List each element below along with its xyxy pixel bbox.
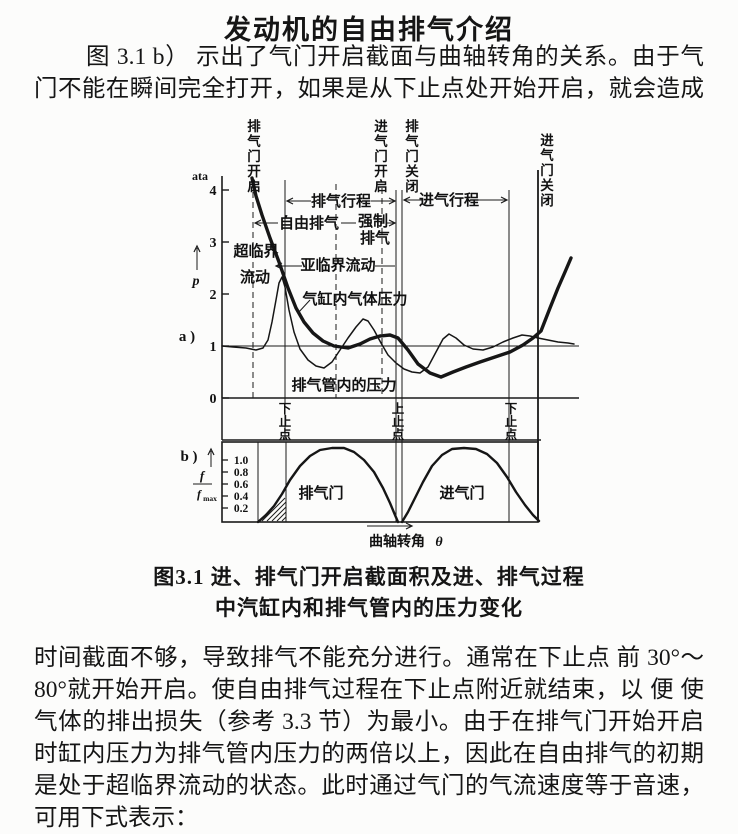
f-label: f [200,468,206,483]
paragraph-1: 图 3.1 b） 示出了气门开启截面与曲轴转角的关系。由于气门不能在瞬间完全打开… [34,41,704,105]
hatch-line [277,512,286,521]
dead-center-label: 下 [505,402,518,416]
panel-a-label: a ) [179,329,195,345]
valve-event-label: 启 [374,178,388,194]
b-tick-label: 0.4 [234,491,249,503]
text-line: 时缸内压力为排气管内压力的两倍以上，因此在自由排气的初期 [34,738,704,770]
annotation-label: 进气行程 [419,191,479,209]
pressure-label: p [192,274,200,289]
annotation-label: 流动 [240,268,270,286]
figure-3-1: 43210atapa )1.00.80.60.40.2b )ffmax排气行程进… [0,110,738,560]
text-line: 80°就开始开启。使自由排气过程在下止点附近就结束，以 便 使 [34,674,704,706]
hatch-line [262,498,285,521]
text-line: 是处于超临界流动的状态。此时通过气门的气流速度等于音速， [34,770,704,802]
fmax-label: f [197,487,202,501]
text-line: 可用下式表示： [34,802,704,834]
figure-caption: 图3.1 进、排气门开启截面积及进、排气过程 中汽缸内和排气管内的压力变化 [0,562,738,624]
valve-event-label: 启 [247,178,261,194]
annotation-label: 亚临界流动 [300,256,375,274]
annotation-label: 自由排气 [279,214,339,232]
dead-center-label: 上 [392,401,405,416]
valve-event-label: 闭 [405,178,419,194]
text-line: 气体的排出损失（参考 3.3 节）为最小。由于在排气门开始开启 [34,706,704,738]
exhaust-valve-lift-curve [258,448,398,522]
figure-chart: 43210atapa )1.00.80.60.40.2b )ffmax排气行程进… [148,110,618,560]
dead-center-label: 止 [505,414,518,429]
dead-center-label: 止 [279,414,292,429]
dead-center-label: 止 [392,414,405,429]
valve-event-label: 关 [540,177,554,193]
valve-event-label: 闭 [540,192,554,208]
text-line: 时间截面不够，导致排气不能充分进行。通常在下止点 前 30°～ [34,642,704,674]
valve-event-label: 门 [540,162,554,178]
b-tick-label: 0.6 [234,479,249,491]
text-line: 图 3.1 b） 示出了气门开启截面与曲轴转角的关系。由于气 [34,41,704,73]
dead-center-label: 下 [279,402,292,416]
valve-event-label: 气 [404,133,419,149]
annotation-label: 进气门 [439,484,484,502]
panel-b-label: b ) [180,449,197,465]
annotation-label: 超临界 [232,242,278,260]
annotation-label: 曲轴转角 [369,533,425,550]
valve-event-label: 门 [247,148,261,164]
caption-line-1: 图3.1 进、排气门开启截面积及进、排气过程 [0,562,738,593]
valve-event-label: 关 [405,163,419,179]
annotation-label: θ [435,535,443,550]
valve-event-label: 排 [247,118,261,134]
b-tick-label: 0.2 [234,503,249,515]
unit-label-ata: ata [192,169,208,183]
valve-event-label: 气 [373,133,388,149]
dead-center-label: 点 [505,427,518,442]
valve-event-label: 开 [247,164,261,179]
intake-valve-lift-curve [402,448,539,522]
valve-event-label: 进 [374,119,388,134]
annotation-label: 排气门 [298,484,343,502]
annotation-label: 强制 [358,212,388,230]
hatch-line [282,517,286,521]
y-tick-label: 1 [210,340,217,355]
annotation-label: 排气管内的压力 [291,376,396,394]
paragraph-2: 时间截面不够，导致排气不能充分进行。通常在下止点 前 30°～80°就开始开启。… [34,642,704,834]
b-tick-label: 1.0 [234,455,249,467]
valve-event-label: 气 [539,147,554,163]
valve-event-label: 开 [374,164,388,179]
y-tick-label: 2 [210,288,217,303]
y-tick-label: 4 [210,184,217,199]
annotation-label: 气缸内气体压力 [301,290,407,308]
fmax-sub: max [203,494,217,503]
annotation-label: 排气 [360,229,390,247]
annotation-label: 排气行程 [311,192,371,210]
valve-event-label: 进 [540,133,554,148]
dead-center-label: 点 [392,427,405,442]
valve-event-label: 排 [405,118,419,134]
y-tick-label: 0 [210,392,217,407]
y-tick-label: 3 [210,236,217,251]
valve-event-label: 气 [246,133,261,149]
dead-center-label: 点 [279,427,292,442]
valve-event-label: 门 [405,148,419,164]
caption-line-2: 中汽缸内和排气管内的压力变化 [0,593,738,624]
b-tick-label: 0.8 [234,467,249,479]
text-line: 门不能在瞬间完全打开，如果是从下止点处开始开启，就会造成 [34,73,704,105]
valve-event-label: 门 [374,148,388,164]
